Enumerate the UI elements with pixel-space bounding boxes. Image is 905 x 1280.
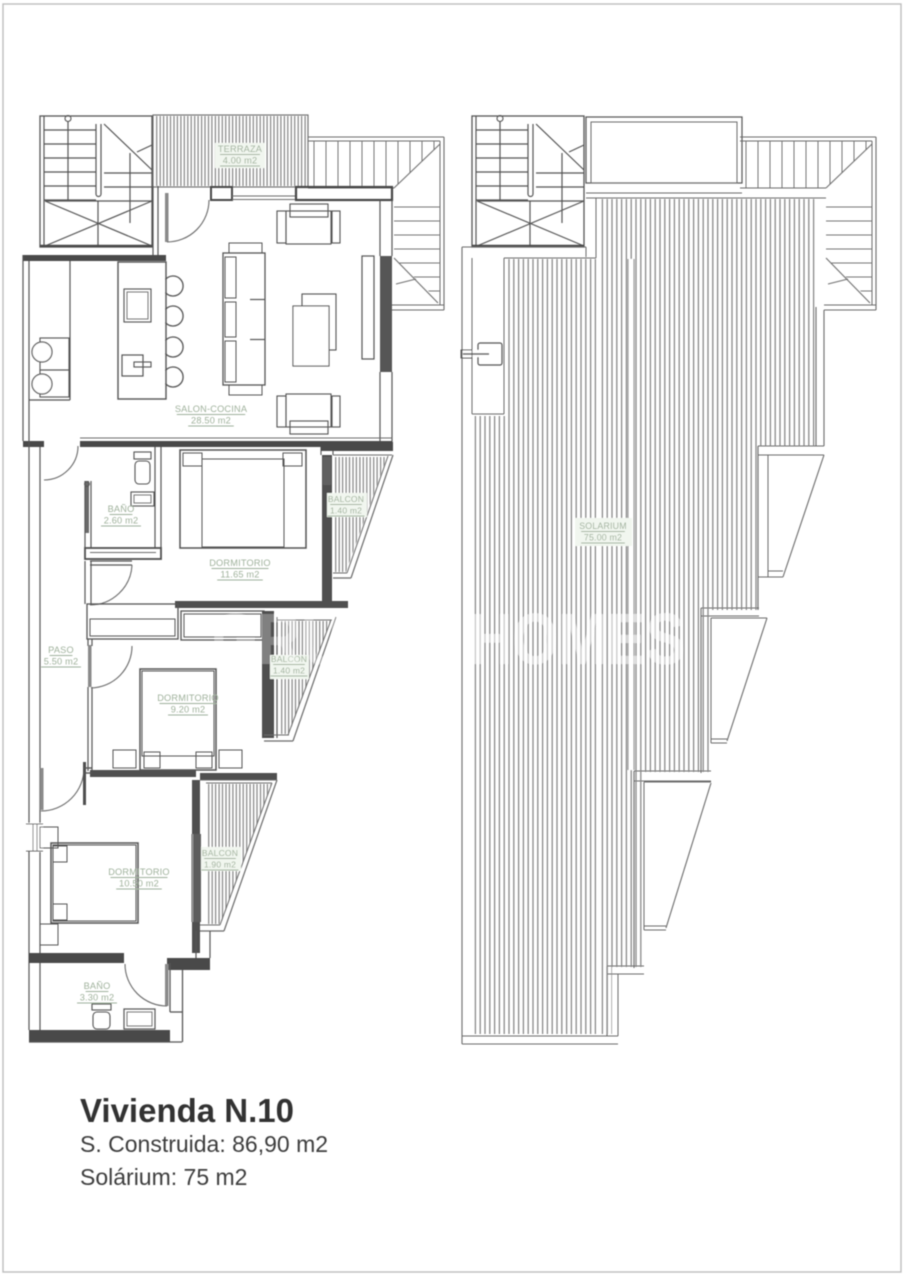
svg-text:BAÑO: BAÑO xyxy=(108,504,135,514)
svg-text:TERRAZA: TERRAZA xyxy=(218,144,263,154)
svg-text:SOLARIUM: SOLARIUM xyxy=(579,521,627,531)
svg-text:S. Construida: 86,90 m2: S. Construida: 86,90 m2 xyxy=(80,1131,328,1157)
svg-text:DORMITORIO: DORMITORIO xyxy=(209,558,271,568)
svg-text:1.40 m2: 1.40 m2 xyxy=(330,506,362,516)
svg-text:BALCON: BALCON xyxy=(328,494,364,504)
svg-text:3.30 m2: 3.30 m2 xyxy=(80,993,115,1003)
svg-text:BAÑO: BAÑO xyxy=(84,981,111,991)
svg-text:DORMITORIO: DORMITORIO xyxy=(108,867,170,877)
svg-text:DORMITORIO: DORMITORIO xyxy=(157,693,219,703)
svg-text:28.50 m2: 28.50 m2 xyxy=(191,416,231,426)
svg-text:Solárium: 75 m2: Solárium: 75 m2 xyxy=(80,1164,247,1190)
svg-text:10.50 m2: 10.50 m2 xyxy=(119,879,159,889)
svg-text:Vivienda N.10: Vivienda N.10 xyxy=(80,1092,294,1129)
svg-text:SALON-COCINA: SALON-COCINA xyxy=(175,404,248,414)
svg-text:2.60 m2: 2.60 m2 xyxy=(104,516,139,526)
svg-text:75.00 m2: 75.00 m2 xyxy=(584,533,622,543)
svg-text:PASO: PASO xyxy=(48,645,74,655)
svg-text:11.65 m2: 11.65 m2 xyxy=(220,570,259,580)
svg-text:GRUPO: GRUPO xyxy=(212,600,430,680)
svg-text:1.90 m2: 1.90 m2 xyxy=(204,860,236,870)
svg-text:BALCON: BALCON xyxy=(202,848,238,858)
svg-text:4.00 m2: 4.00 m2 xyxy=(223,156,258,166)
svg-text:9.20 m2: 9.20 m2 xyxy=(171,705,206,715)
svg-text:5.50 m2: 5.50 m2 xyxy=(44,657,79,667)
svg-text:HOMES: HOMES xyxy=(470,600,685,680)
